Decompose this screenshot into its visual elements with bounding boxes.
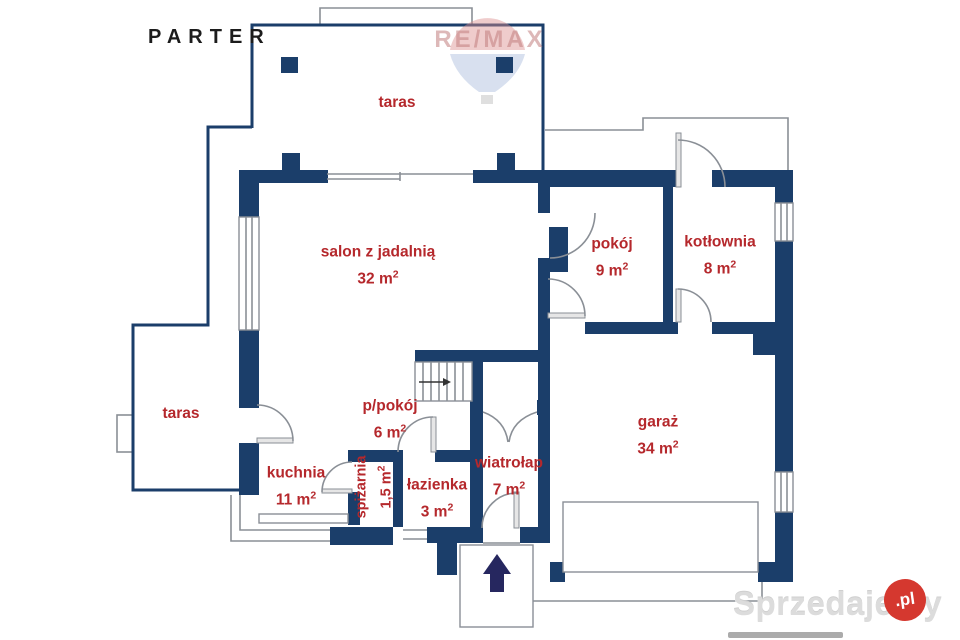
site-watermark-bar — [728, 632, 843, 638]
left-step-outline — [117, 415, 133, 452]
page-title: PARTER — [148, 26, 271, 49]
room-label-garaz: garaż 34 m2 — [637, 411, 678, 460]
stairs — [415, 362, 472, 401]
pokoj-garage-door — [548, 279, 585, 318]
room-label-spizarnia: spiżarnia 1,5 m2 — [352, 456, 397, 519]
wall-pillar — [497, 153, 515, 171]
chimney — [549, 227, 568, 272]
garage-window — [775, 472, 793, 512]
chimney — [437, 543, 457, 575]
kuchnia-taras-door — [257, 405, 293, 443]
lazienka-window — [403, 530, 427, 539]
kuchnia-window-band — [259, 514, 348, 523]
room-label-pokoj: pokój 9 m2 — [591, 233, 632, 282]
terrace-pillar — [496, 57, 513, 73]
garage-gate — [563, 502, 758, 572]
room-label-lazienka: łazienka 3 m2 — [407, 474, 467, 523]
salon-window — [239, 217, 259, 330]
site-watermark: Sprzedajemy .pl — [728, 583, 958, 640]
floor-plan-drawing — [0, 0, 960, 640]
kotlownia-garage-door — [676, 289, 711, 322]
remax-watermark-text: RE/MAX — [425, 26, 555, 54]
wiatrolap-double-door — [483, 412, 537, 442]
terrace-pillar — [281, 57, 298, 73]
balloon-bottom — [450, 54, 525, 92]
top-notch-outline — [320, 8, 472, 25]
floor-plan: PARTER RE/MAX taras taras salon z jadaln… — [0, 0, 960, 640]
kotlownia-window — [775, 203, 793, 241]
room-label-kuchnia: kuchnia 11 m2 — [267, 462, 326, 511]
spizarnia-door — [322, 462, 352, 493]
room-label-salon: salon z jadalnią 32 m2 — [321, 241, 436, 290]
room-label-taras-top: taras — [378, 92, 415, 114]
room-label-ppokoj: p/pokój 6 m2 — [362, 395, 417, 444]
terrace-left-outline — [133, 127, 252, 490]
wall-pillar — [282, 153, 300, 171]
room-label-wiatrolap: wiatrołap 7 m2 — [475, 452, 543, 501]
sliding-door — [327, 172, 473, 181]
room-label-taras-left: taras — [162, 403, 199, 425]
room-label-kotlownia: kotłownia 8 m2 — [684, 231, 755, 280]
balloon-basket — [481, 95, 493, 104]
